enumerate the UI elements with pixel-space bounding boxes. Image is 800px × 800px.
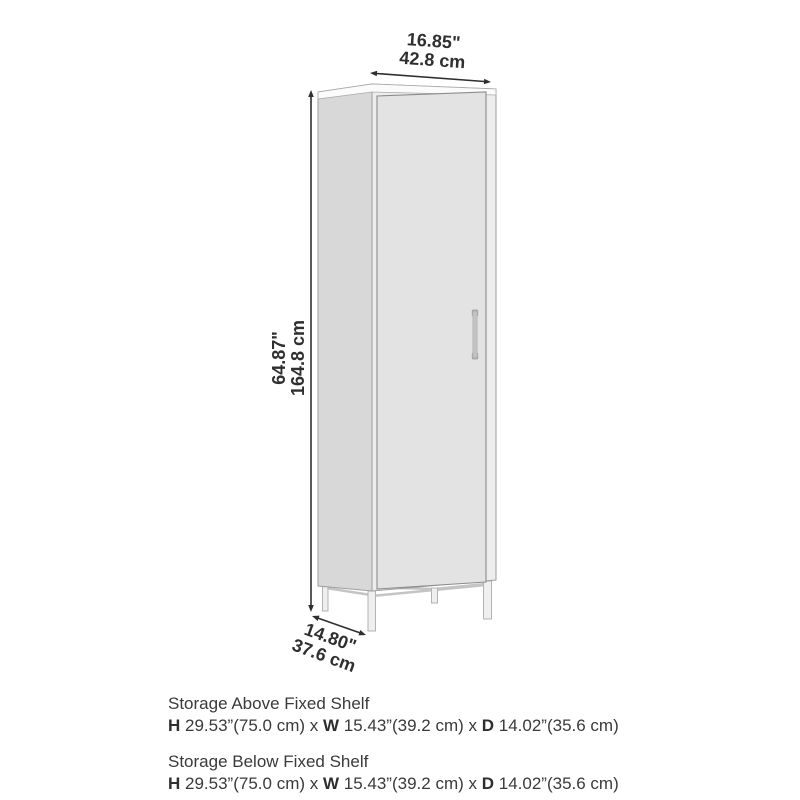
leg-front-right bbox=[484, 581, 492, 619]
width-dimension-label: 16.85" 42.8 cm bbox=[399, 30, 468, 73]
cabinet-door bbox=[377, 92, 486, 589]
spec-title: Storage Above Fixed Shelf bbox=[168, 693, 619, 715]
height-dimension-arrow bbox=[308, 90, 314, 612]
spec-storage-below: Storage Below Fixed Shelf H 29.53”(75.0 … bbox=[168, 751, 619, 795]
door-handle bbox=[472, 310, 478, 360]
width-dimension-arrow bbox=[370, 71, 491, 85]
storage-specs: Storage Above Fixed Shelf H 29.53”(75.0 … bbox=[168, 693, 619, 800]
spec-storage-above: Storage Above Fixed Shelf H 29.53”(75.0 … bbox=[168, 693, 619, 737]
leg-front-left bbox=[368, 591, 376, 631]
cabinet-illustration bbox=[0, 0, 800, 800]
height-cm: 164.8 cm bbox=[289, 320, 308, 396]
leg-back-left bbox=[323, 584, 329, 611]
spec-dimensions: H 29.53”(75.0 cm) x W 15.43”(39.2 cm) x … bbox=[168, 773, 619, 795]
height-inches: 64.87" bbox=[270, 320, 289, 396]
cabinet-side-panel bbox=[318, 84, 372, 591]
spec-title: Storage Below Fixed Shelf bbox=[168, 751, 619, 773]
product-dimension-diagram: 16.85" 42.8 cm 64.87" 164.8 cm 14.80" 37… bbox=[0, 0, 800, 800]
height-dimension-label: 64.87" 164.8 cm bbox=[270, 320, 308, 396]
leg-back-right bbox=[432, 588, 438, 603]
spec-dimensions: H 29.53”(75.0 cm) x W 15.43”(39.2 cm) x … bbox=[168, 715, 619, 737]
